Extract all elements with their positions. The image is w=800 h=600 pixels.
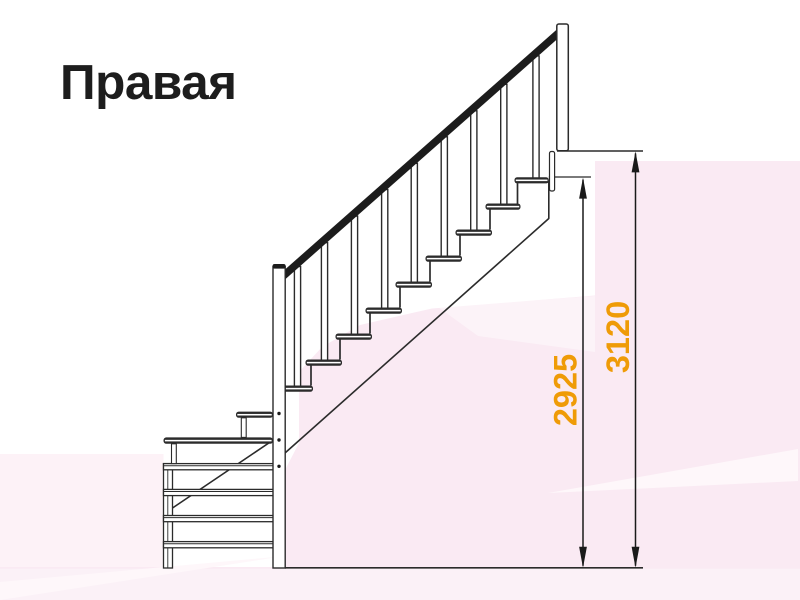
svg-text:3120: 3120: [600, 301, 636, 373]
svg-text:Правая: Правая: [60, 55, 237, 110]
svg-text:2925: 2925: [548, 354, 584, 426]
